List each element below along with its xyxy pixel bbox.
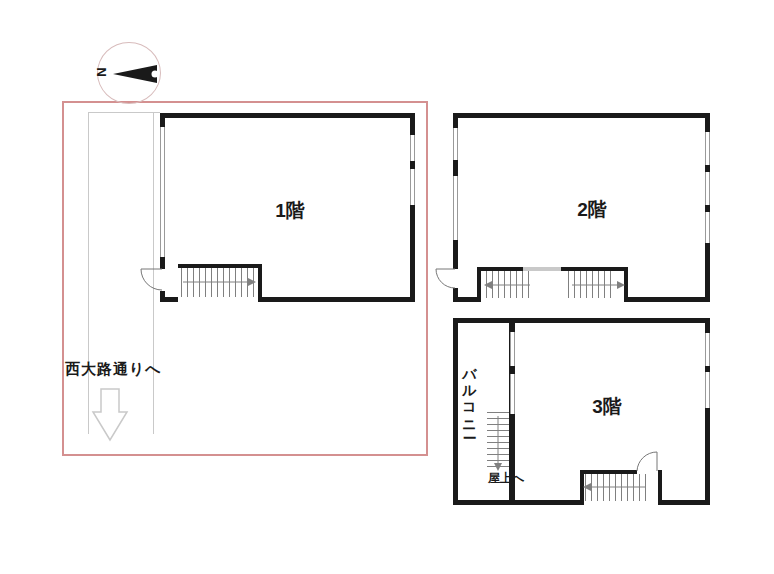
- street-direction-label: 西大路通りへ: [65, 360, 162, 379]
- floor-1-stairs: [181, 268, 257, 297]
- floor-1-label: 1階: [250, 198, 330, 224]
- floor-1-door-opening: [160, 269, 165, 291]
- floor-2-label: 2階: [552, 197, 632, 223]
- floor-3-stairs: [585, 474, 648, 501]
- floor-1-right-window-mullion: [410, 161, 415, 169]
- floor-2-right-window-mullion-2: [705, 205, 710, 212]
- approach-path-left-line: [88, 112, 89, 434]
- floor-2-left-window-upper: [453, 128, 458, 160]
- floor-2-left-window-lower: [453, 176, 458, 240]
- approach-path-right-line: [153, 112, 154, 434]
- compass-north-label: N: [92, 62, 112, 82]
- balcony-label: バルコニー: [461, 358, 479, 448]
- floor-1-left-window: [160, 127, 165, 257]
- floor-2-right-window-mullion-1: [705, 165, 710, 172]
- floor-3-roof-stairs: [487, 412, 509, 469]
- floor-3-label: 3階: [567, 394, 647, 420]
- floor-2-stairs-up: [568, 271, 614, 298]
- floor-3-divider-window-mullion: [510, 366, 515, 374]
- approach-path-top-line: [88, 112, 160, 113]
- floor-2-door-opening: [453, 269, 458, 288]
- floor-3-right-window-mullion: [705, 366, 710, 372]
- floor-2-right-window: [705, 132, 710, 243]
- floor-1-right-window: [410, 135, 415, 205]
- floor-2-stairs-down: [486, 271, 532, 298]
- floor-plan-canvas: N 1階 2階 3階 バルコニー 屋上へ 西大路通りへ: [0, 0, 774, 574]
- to-rooftop-label: 屋上へ: [488, 470, 524, 487]
